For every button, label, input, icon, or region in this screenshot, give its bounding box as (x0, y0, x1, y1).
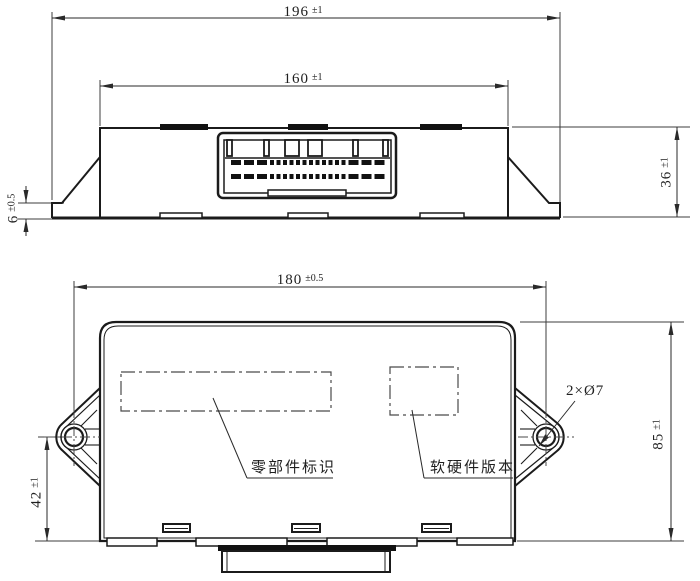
dim-overall-width: 196±1 (243, 3, 363, 20)
bottom-view-drawing (35, 281, 684, 572)
part-id-zone (121, 372, 331, 411)
dim-body-width: 160±1 (243, 70, 363, 87)
part-id-label: 零部件标识 (251, 460, 336, 476)
dim-body-height-top-view: 36±1 (658, 133, 675, 213)
engineering-drawing-canvas: 196±1 160±1 36±1 6±0.5 180±0.5 42±1 85±1… (0, 0, 700, 581)
hole-callout: 2×Ø7 (566, 383, 604, 399)
connector-face (218, 133, 396, 198)
top-view-drawing (18, 12, 690, 236)
version-zone (390, 367, 458, 415)
right-mounting-ear (515, 388, 574, 486)
left-mounting-ear (44, 388, 100, 486)
dim-bracket-thickness: 6±0.5 (5, 164, 22, 254)
version-label: 软硬件版本 (430, 460, 515, 476)
connector-protrusion (218, 545, 396, 572)
dim-body-height-bottom-view: 85±1 (650, 393, 667, 477)
dim-hole-to-edge: 42±1 (28, 451, 45, 535)
dim-hole-spacing: 180±0.5 (240, 271, 360, 288)
drawing-linework (0, 0, 700, 581)
